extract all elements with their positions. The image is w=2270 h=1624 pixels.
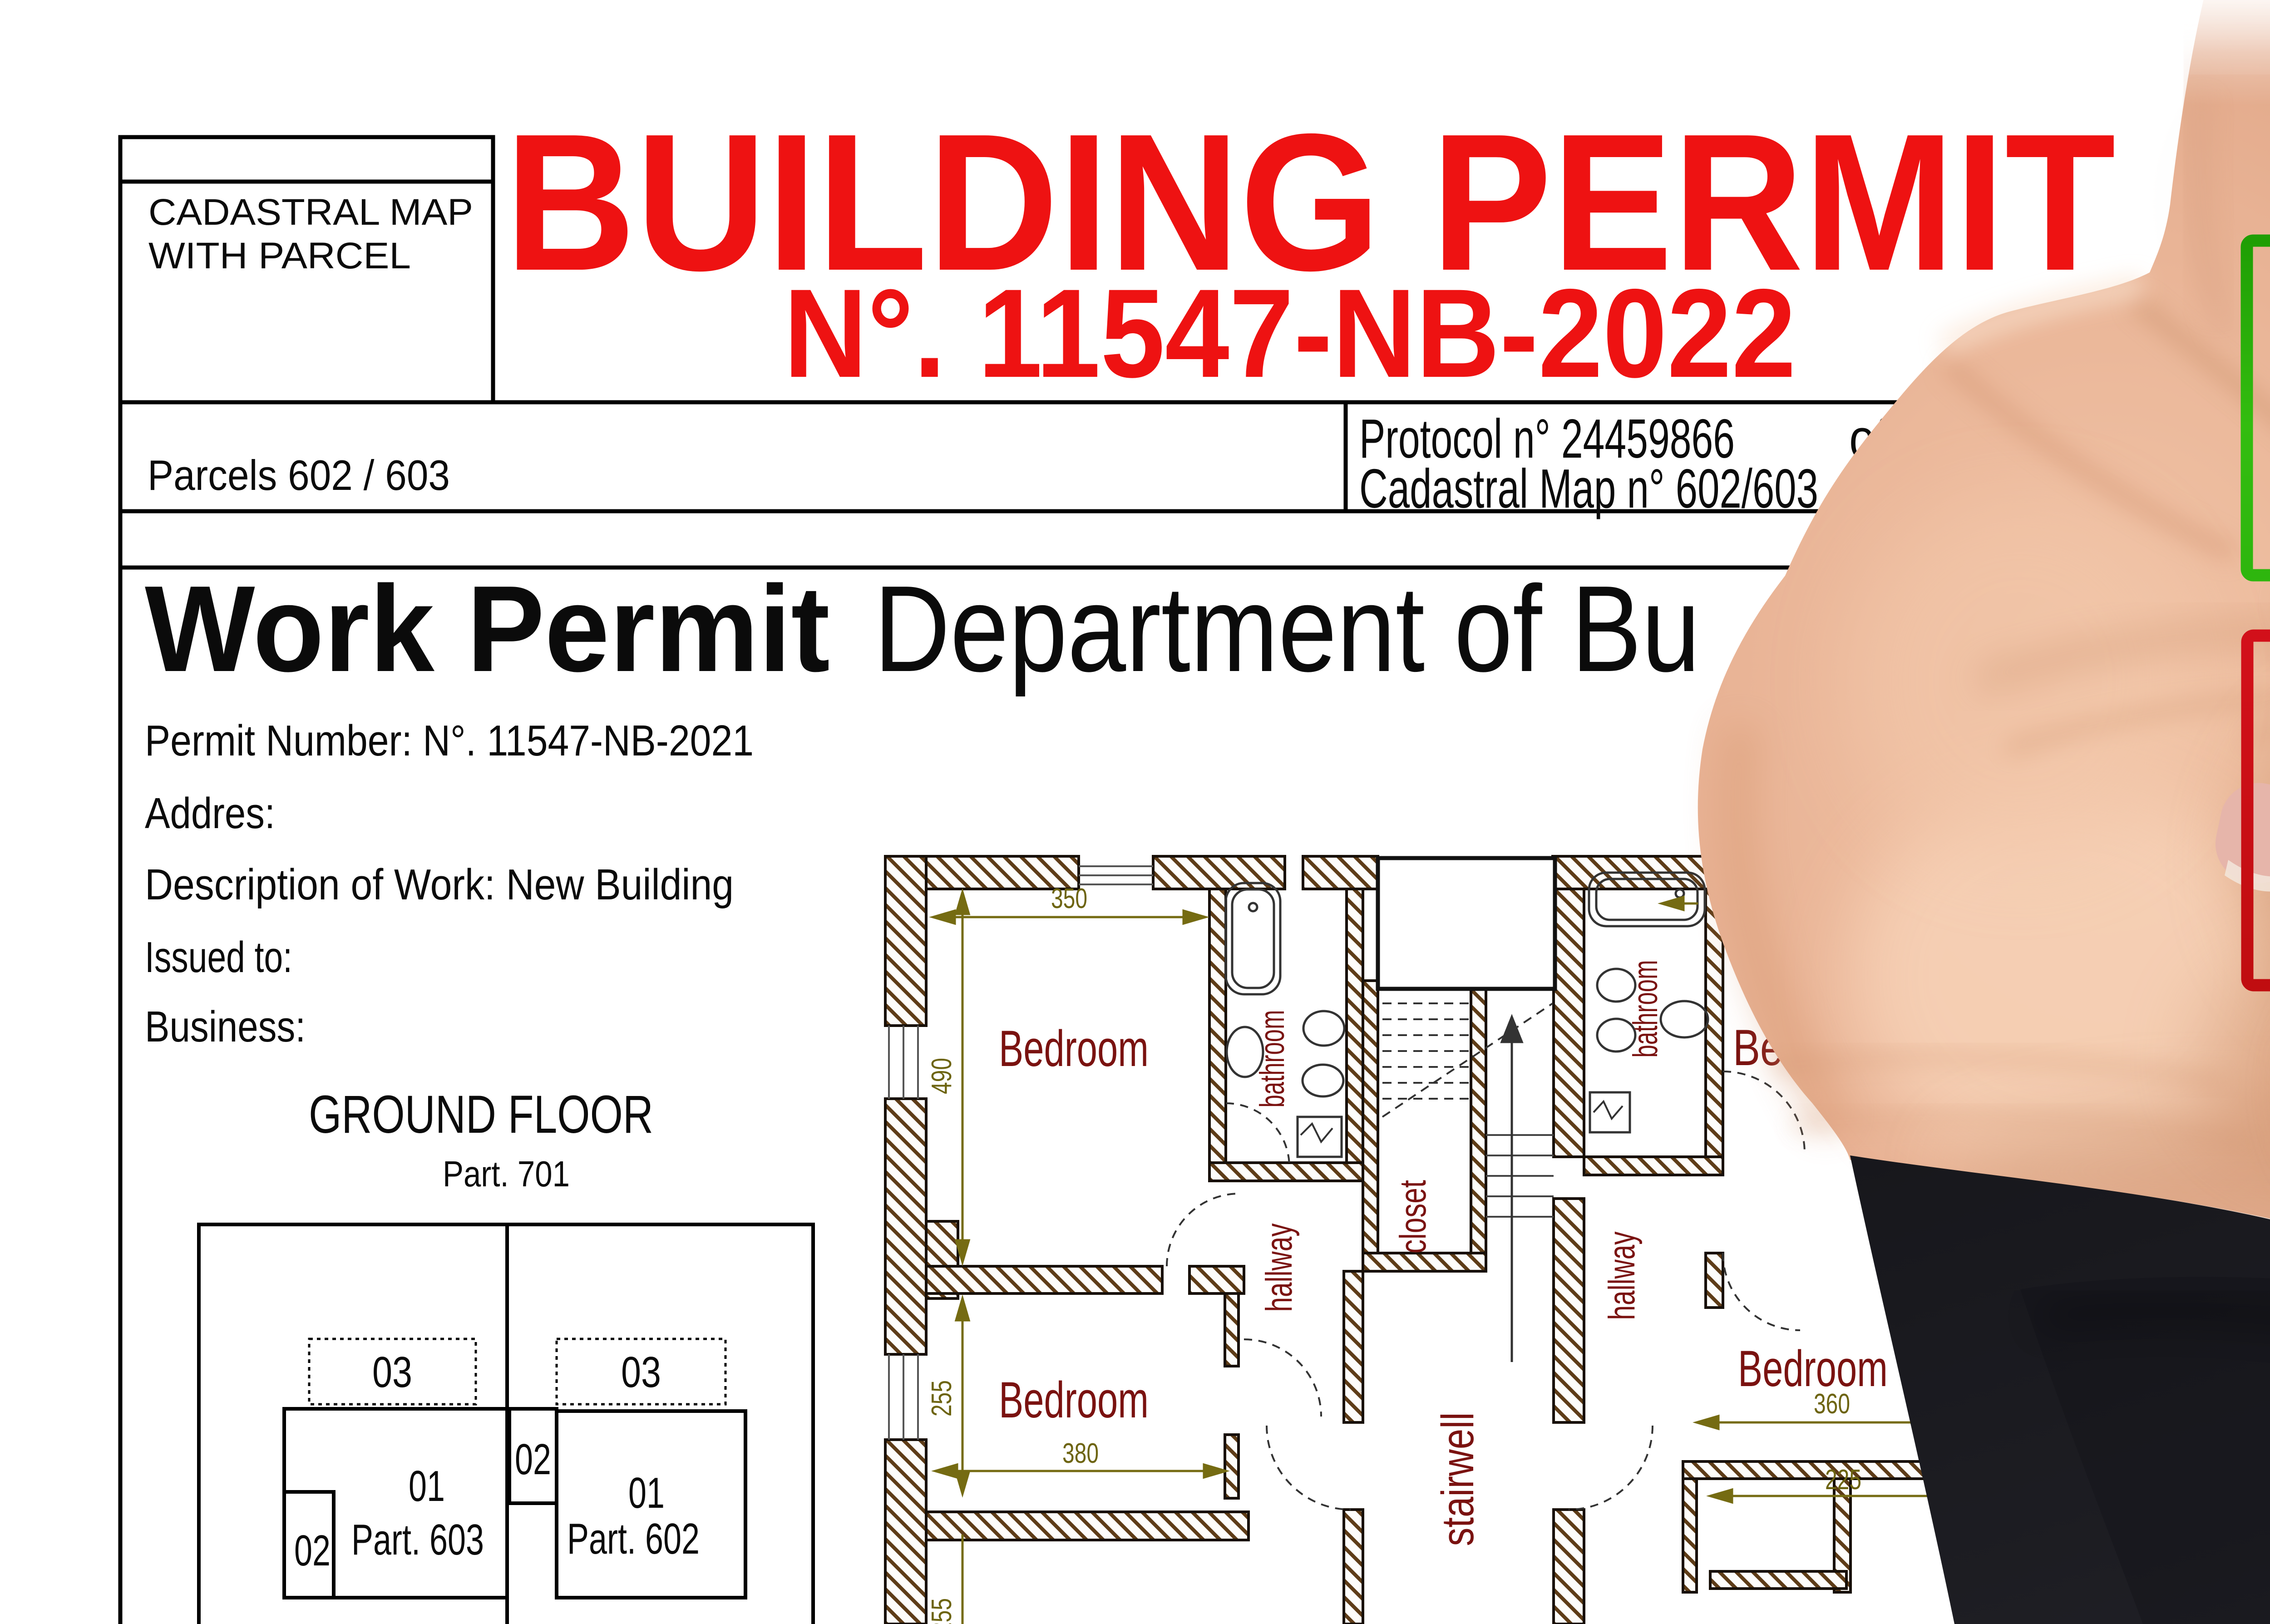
svg-text:Part. 603: Part. 603 [351, 1515, 484, 1564]
svg-text:Work PermitDepartment of Bu: Work PermitDepartment of Bu [145, 561, 1700, 698]
svg-text:hallway: hallway [1601, 1232, 1643, 1320]
svg-text:bathroom: bathroom [1626, 960, 1665, 1058]
svg-text:Parcels 602 / 603: Parcels 602 / 603 [148, 451, 450, 499]
svg-text:01: 01 [628, 1469, 665, 1517]
svg-text:Permit Number: N°. 11547-NB-20: Permit Number: N°. 11547-NB-2021 [145, 716, 754, 765]
svg-text:255: 255 [926, 1380, 957, 1417]
svg-text:01: 01 [409, 1462, 445, 1510]
svg-text:Issued to:: Issued to: [145, 933, 292, 982]
svg-text:Description of Work: New Build: Description of Work: New Building [145, 860, 734, 909]
svg-text:N°. 11547-NB-2022: N°. 11547-NB-2022 [784, 262, 1796, 404]
svg-text:stairwell: stairwell [1432, 1412, 1483, 1546]
svg-text:Cadastral Map n° 602/603: Cadastral Map n° 602/603 [1359, 458, 1818, 519]
svg-text:490: 490 [926, 1058, 957, 1094]
svg-text:Addres:: Addres: [145, 789, 275, 838]
svg-text:Business:: Business: [145, 1002, 306, 1051]
svg-text:225: 225 [1825, 1464, 1861, 1496]
svg-text:03: 03 [621, 1348, 661, 1397]
svg-text:02: 02 [294, 1526, 331, 1575]
svg-text:Part. 602: Part. 602 [567, 1515, 700, 1563]
svg-text:Bedroom: Bedroom [1738, 1340, 1888, 1397]
svg-text:Bedroom: Bedroom [999, 1020, 1149, 1077]
svg-text:Bedroom: Bedroom [999, 1372, 1149, 1428]
svg-text:GROUND FLOOR: GROUND FLOOR [309, 1085, 653, 1145]
svg-text:WITH PARCEL: WITH PARCEL [148, 235, 411, 276]
svg-text:hallway: hallway [1258, 1224, 1300, 1312]
svg-text:255: 255 [926, 1598, 957, 1624]
svg-text:CADASTRAL MAP: CADASTRAL MAP [148, 192, 473, 233]
svg-text:bathroom: bathroom [1253, 1010, 1292, 1108]
svg-text:02: 02 [515, 1435, 551, 1484]
svg-text:350: 350 [1051, 883, 1087, 914]
svg-text:380: 380 [1062, 1438, 1099, 1469]
svg-text:Part. 701: Part. 701 [443, 1154, 570, 1194]
svg-text:closet: closet [1392, 1180, 1434, 1254]
svg-text:03: 03 [372, 1348, 412, 1397]
